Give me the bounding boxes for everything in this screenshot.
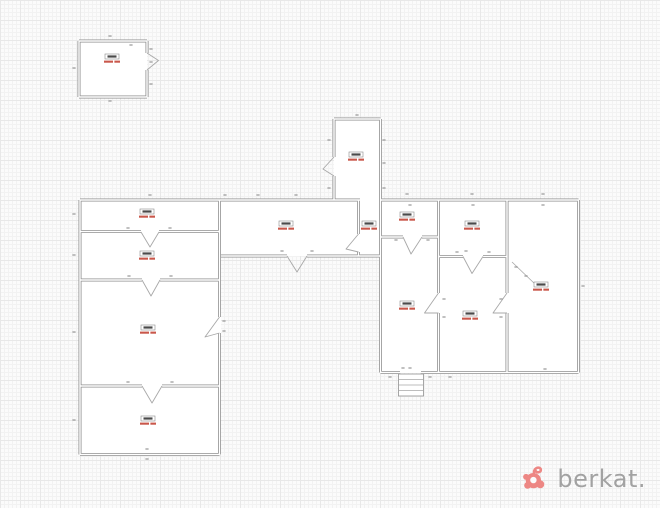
dim-mark	[442, 298, 445, 300]
room-label-right-block-big-east	[533, 282, 549, 291]
dim-mark	[405, 193, 408, 195]
dim-mark	[310, 250, 313, 252]
dim-mark	[471, 204, 474, 206]
dim-mark	[408, 204, 411, 206]
room-label-vestibule	[361, 221, 377, 230]
dim-mark	[108, 100, 111, 102]
dim-mark	[169, 275, 172, 277]
dim-mark	[72, 331, 75, 333]
dim-mark	[426, 239, 429, 241]
room-label-right-block-top-left	[399, 212, 415, 221]
dim-mark	[294, 194, 297, 196]
logo-ring-hole	[531, 477, 537, 483]
dim-mark	[541, 193, 544, 195]
dim-mark	[72, 419, 75, 421]
room-interiors	[79, 41, 579, 455]
dim-mark	[499, 316, 502, 318]
dim-mark	[327, 139, 330, 141]
dim-mark	[448, 376, 451, 378]
dim-mark	[382, 162, 385, 164]
room-label-corridor	[278, 221, 294, 230]
dim-mark	[543, 368, 546, 370]
entrance-steps	[399, 374, 424, 396]
dim-mark	[72, 254, 75, 256]
dim-mark	[126, 227, 129, 229]
dim-mark	[382, 139, 385, 141]
room-label-right-block-bottom-left	[399, 301, 415, 310]
dim-mark	[455, 251, 458, 253]
dim-mark	[408, 367, 411, 369]
dim-mark	[145, 458, 148, 460]
dim-mark	[168, 227, 171, 229]
room-label-left-wing-room-c	[140, 325, 156, 334]
dim-mark	[428, 376, 431, 378]
floorplan-canvas: berkat.	[0, 0, 660, 508]
dim-mark	[170, 381, 173, 383]
berkat-watermark: berkat.	[518, 462, 646, 496]
berkat-logo-text: berkat.	[557, 467, 646, 491]
dim-mark	[129, 44, 132, 46]
dim-mark	[355, 114, 358, 116]
dim-mark	[223, 194, 226, 196]
floorplan-drawing	[0, 0, 660, 508]
room-label-right-block-bottom-middle	[462, 311, 478, 320]
door-corridor-south-exit	[287, 256, 307, 272]
dim-mark	[145, 448, 148, 450]
room-label-left-wing-room-b	[139, 251, 155, 260]
dim-mark	[72, 67, 75, 69]
dim-mark	[382, 187, 385, 189]
room-label-detached-outbuilding	[104, 54, 120, 63]
dim-mark	[464, 250, 467, 252]
dim-mark	[401, 367, 404, 369]
dim-mark	[327, 187, 330, 189]
dim-mark	[388, 376, 391, 378]
dim-mark	[442, 316, 445, 318]
dim-mark	[222, 320, 225, 322]
dim-mark	[72, 213, 75, 215]
dim-mark	[514, 266, 517, 268]
door-detached-east	[147, 53, 159, 70]
dim-mark	[499, 298, 502, 300]
dim-mark	[148, 194, 151, 196]
dim-mark	[470, 193, 473, 195]
dim-mark	[280, 250, 283, 252]
room-label-north-annex	[348, 152, 364, 161]
dim-mark	[149, 83, 152, 85]
dim-mark	[541, 204, 544, 206]
berkat-logo-icon	[518, 462, 552, 496]
dim-mark	[108, 35, 111, 37]
dim-mark	[524, 275, 527, 277]
door-annex-west	[323, 157, 334, 176]
dim-mark	[581, 285, 584, 287]
dim-mark	[149, 48, 152, 50]
dim-mark	[222, 330, 225, 332]
room-label-left-wing-room-a	[139, 209, 155, 218]
dim-mark	[149, 61, 152, 63]
room-label-right-block-top-middle	[464, 221, 480, 230]
room-label-left-wing-room-d	[140, 416, 156, 425]
dim-mark	[126, 381, 129, 383]
dim-mark	[487, 251, 490, 253]
dim-mark	[256, 194, 259, 196]
dim-mark	[127, 275, 130, 277]
dim-mark	[394, 239, 397, 241]
